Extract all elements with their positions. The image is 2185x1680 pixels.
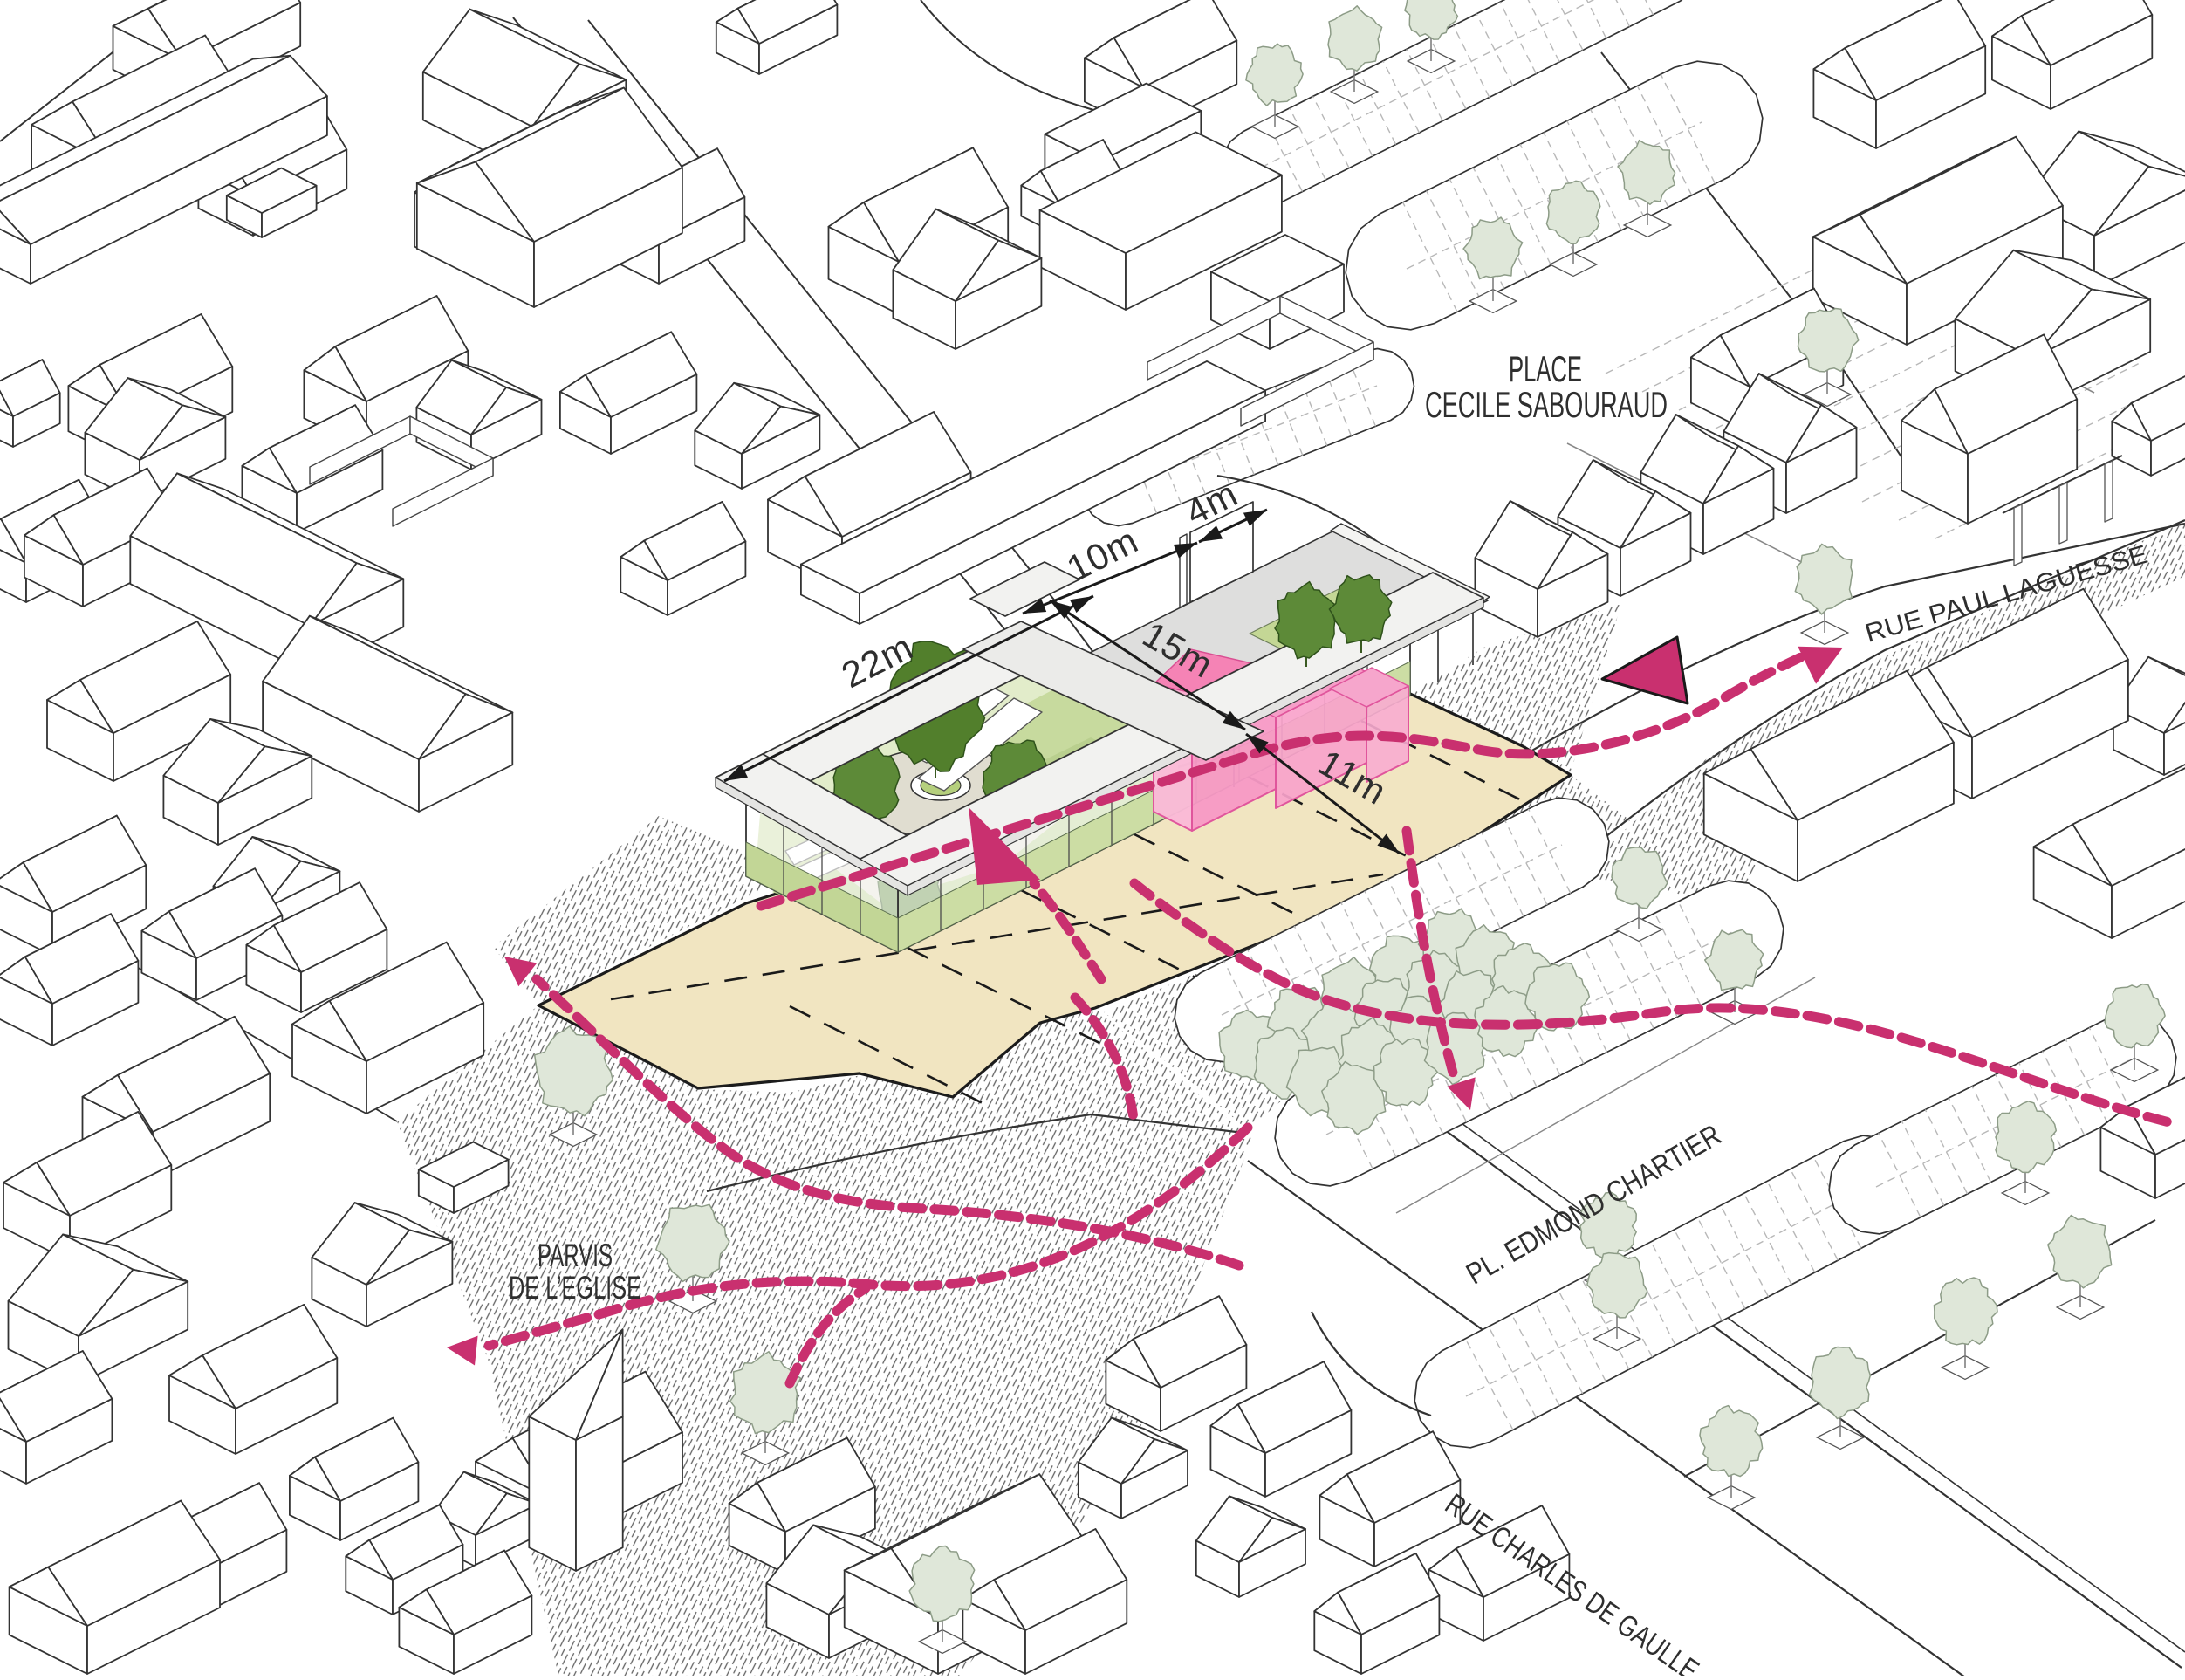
svg-text:PLACE: PLACE	[1509, 348, 1582, 389]
svg-text:CECILE SABOURAUD: CECILE SABOURAUD	[1425, 384, 1668, 425]
svg-text:PARVIS: PARVIS	[538, 1238, 613, 1273]
svg-text:DE L’EGLISE: DE L’EGLISE	[509, 1270, 641, 1306]
